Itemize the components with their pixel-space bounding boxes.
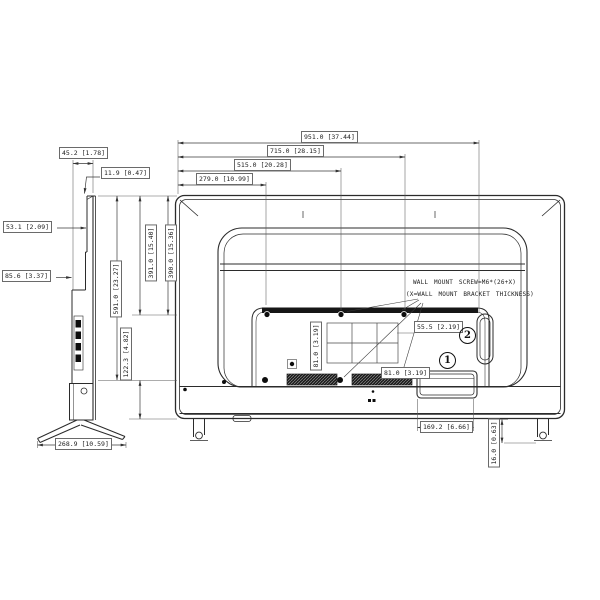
dim-foot-16: 16.0 [0.63]: [488, 418, 500, 467]
dim-side-thickness: 11.9 [0.47]: [101, 167, 150, 179]
callout-2-side-slot: 2: [459, 327, 476, 344]
dim-vesa-horizontal: 81.0 [3.19]: [381, 367, 430, 379]
dim-stand-width: 268.9 [10.59]: [55, 438, 112, 450]
dim-side-depth-53: 53.1 [2.09]: [3, 221, 52, 233]
dim-vesa-vertical: 81.0 [3.19]: [310, 321, 322, 370]
drawing-linework: [0, 0, 600, 600]
vesa-adapter-squares: [327, 323, 398, 363]
rear-center-marks: [368, 390, 376, 402]
rear-bottom-band: [180, 387, 561, 422]
wall-mount-note-line1: WALL MOUNT SCREW=M6*(26+X): [413, 279, 516, 286]
dim-height-390: 390.0 [15.36]: [165, 225, 177, 282]
dim-width-279: 279.0 [10.99]: [196, 173, 253, 185]
dimension-drawing: 951.0 [37.44] 715.0 [28.15] 515.0 [20.28…: [0, 0, 600, 600]
dim-overall-width: 951.0 [37.44]: [301, 131, 358, 143]
callout-1-terminal-cover: 1: [439, 352, 456, 369]
dim-width-715: 715.0 [28.15]: [267, 145, 324, 157]
dim-height-overall: 591.0 [23.27]: [110, 261, 122, 318]
dim-side-depth-max: 85.6 [3.37]: [2, 270, 51, 282]
wall-mount-note-line2: (X=WALL MOUNT BRACKET THICKNESS): [406, 291, 534, 298]
dim-height-122: 122.3 [4.82]: [120, 328, 132, 381]
dim-width-515: 515.0 [20.28]: [234, 159, 291, 171]
vent-strip-top: [262, 308, 478, 314]
dim-offset-55: 55.5 [2.19]: [414, 321, 463, 333]
dim-height-391: 391.0 [15.40]: [145, 225, 157, 282]
dim-side-depth-top: 45.2 [1.78]: [59, 147, 108, 159]
side-view: [70, 196, 96, 420]
dim-terminal-width: 169.2 [6.66]: [420, 421, 473, 433]
